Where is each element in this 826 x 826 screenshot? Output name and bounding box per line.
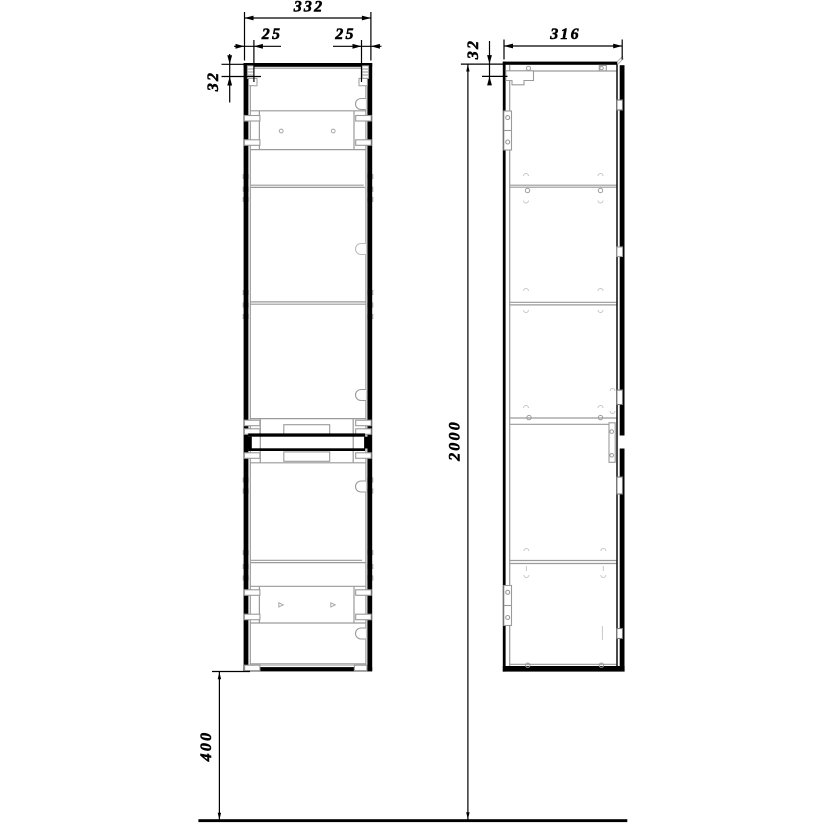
svg-text:25: 25 [334, 26, 355, 43]
svg-text:32: 32 [465, 39, 482, 60]
svg-text:332: 332 [293, 0, 325, 16]
svg-text:25: 25 [261, 26, 282, 43]
svg-text:400: 400 [198, 731, 215, 763]
svg-text:316: 316 [549, 26, 581, 43]
svg-text:2000: 2000 [447, 420, 464, 462]
svg-text:32: 32 [205, 71, 222, 92]
